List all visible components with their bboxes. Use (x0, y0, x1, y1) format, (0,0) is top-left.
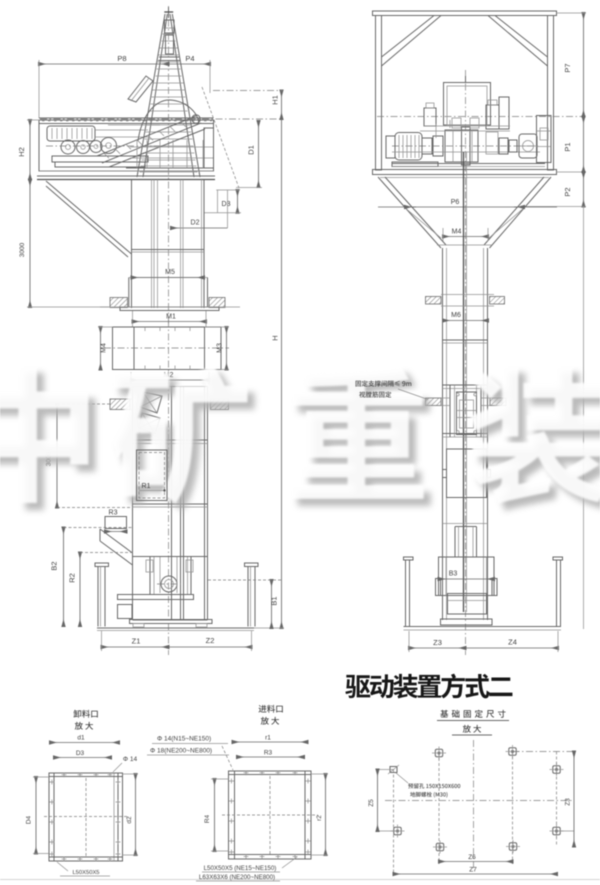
svg-text:Z3: Z3 (433, 638, 442, 647)
svg-text:Z2: Z2 (206, 636, 215, 645)
svg-text:H1: H1 (271, 95, 280, 105)
svg-text:d1: d1 (77, 735, 85, 742)
svg-text:D3: D3 (76, 750, 85, 757)
svg-text:P2: P2 (563, 187, 572, 196)
svg-text:r2: r2 (316, 815, 323, 821)
svg-text:Z1: Z1 (132, 637, 141, 646)
svg-text:R3: R3 (264, 750, 273, 757)
svg-text:M5: M5 (165, 269, 175, 276)
svg-text:D4: D4 (26, 815, 33, 824)
svg-text:P8: P8 (117, 54, 126, 63)
svg-text:H: H (271, 335, 280, 340)
svg-text:R2: R2 (68, 573, 77, 583)
svg-text:Φ 14(N15~NE150): Φ 14(N15~NE150) (157, 736, 211, 743)
svg-text:P1: P1 (563, 142, 572, 151)
svg-text:R1: R1 (142, 483, 151, 490)
svg-text:P6: P6 (451, 199, 460, 206)
svg-text:R4: R4 (204, 814, 211, 823)
svg-text:D3: D3 (222, 201, 231, 208)
svg-text:B3: B3 (449, 571, 458, 578)
svg-text:L63X63X6 (NE200~NE800): L63X63X6 (NE200~NE800) (199, 874, 275, 881)
svg-text:B2: B2 (50, 561, 59, 570)
svg-text:D1: D1 (247, 145, 256, 155)
svg-text:Z3: Z3 (565, 798, 572, 806)
svg-text:d2: d2 (126, 816, 133, 824)
svg-text:Φ 14: Φ 14 (123, 756, 138, 763)
svg-text:B1: B1 (270, 596, 279, 605)
svg-text:Z7: Z7 (469, 867, 477, 874)
svg-text:Z6: Z6 (468, 854, 476, 861)
svg-text:r1: r1 (265, 735, 271, 742)
svg-text:P7: P7 (563, 63, 572, 72)
svg-text:L50X50X5 (NE15~NE150): L50X50X5 (NE15~NE150) (204, 865, 277, 872)
svg-text:M6: M6 (451, 312, 461, 319)
svg-text:L50X50X5: L50X50X5 (72, 870, 99, 876)
svg-text:Z5: Z5 (368, 799, 375, 807)
svg-text:M4: M4 (452, 229, 462, 236)
svg-text:Φ 18(NE200~NE800): Φ 18(NE200~NE800) (150, 748, 212, 755)
svg-text:Z4: Z4 (508, 638, 517, 647)
svg-text:M4: M4 (101, 343, 108, 353)
svg-text:R3: R3 (109, 510, 118, 517)
svg-text:M3: M3 (217, 343, 224, 353)
svg-text:P4: P4 (185, 54, 194, 63)
svg-text:H2: H2 (17, 147, 26, 157)
svg-text:M1: M1 (166, 314, 176, 321)
svg-text:3000: 3000 (19, 242, 26, 257)
svg-text:D2: D2 (191, 220, 200, 227)
